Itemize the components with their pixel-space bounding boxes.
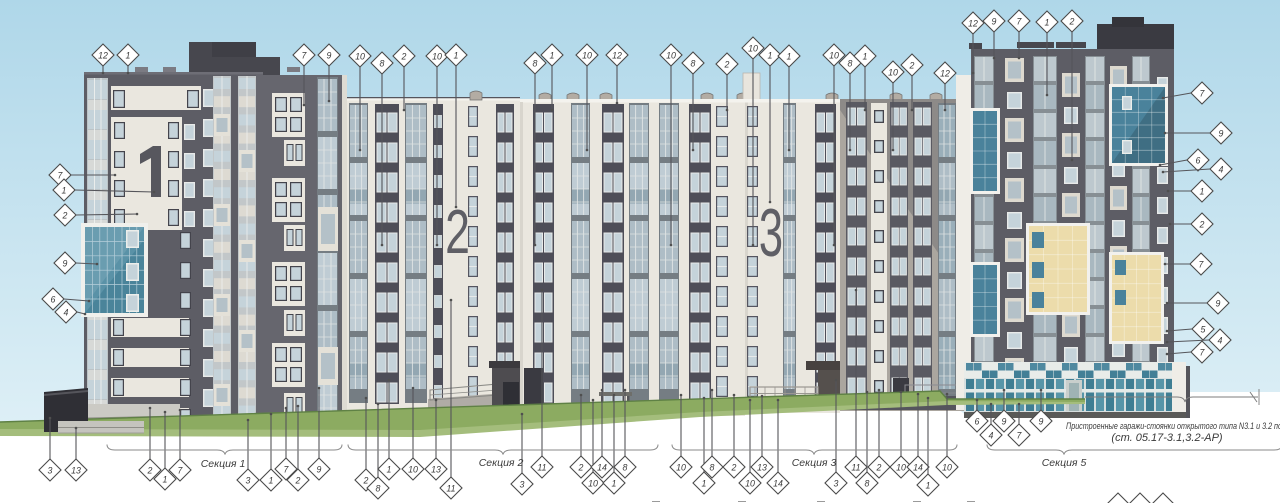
svg-text:Секция 1: Секция 1	[201, 458, 246, 470]
svg-text:10: 10	[432, 51, 442, 61]
svg-text:1: 1	[768, 50, 773, 60]
svg-text:2: 2	[295, 475, 301, 485]
svg-text:8: 8	[623, 462, 628, 472]
svg-text:2: 2	[1199, 219, 1205, 229]
svg-text:1: 1	[269, 475, 274, 485]
svg-text:1: 1	[387, 464, 392, 474]
svg-text:2: 2	[401, 51, 407, 61]
svg-text:10: 10	[676, 462, 686, 472]
svg-text:3: 3	[834, 478, 839, 488]
svg-text:3: 3	[520, 479, 525, 489]
svg-text:8: 8	[691, 58, 696, 68]
svg-text:3: 3	[48, 465, 53, 475]
svg-text:1: 1	[1200, 186, 1205, 196]
svg-text:1: 1	[163, 474, 168, 484]
svg-text:14: 14	[913, 462, 923, 472]
svg-text:10: 10	[408, 464, 418, 474]
svg-text:4: 4	[1218, 335, 1223, 345]
svg-text:1: 1	[126, 50, 131, 60]
svg-text:14: 14	[773, 478, 783, 488]
svg-text:2: 2	[62, 210, 68, 220]
svg-text:12: 12	[98, 50, 108, 60]
svg-text:2: 2	[909, 60, 915, 70]
svg-text:8: 8	[865, 478, 870, 488]
svg-text:11: 11	[851, 462, 860, 472]
svg-text:4: 4	[989, 430, 994, 440]
svg-text:13: 13	[71, 465, 81, 475]
svg-text:10: 10	[829, 50, 839, 60]
svg-text:12: 12	[612, 50, 622, 60]
svg-text:8: 8	[380, 58, 385, 68]
svg-text:2: 2	[445, 198, 470, 267]
svg-text:2: 2	[363, 475, 369, 485]
svg-text:1: 1	[787, 51, 792, 61]
svg-text:10: 10	[582, 50, 592, 60]
svg-text:10: 10	[666, 50, 676, 60]
svg-text:10: 10	[745, 478, 755, 488]
svg-text:11: 11	[446, 483, 455, 493]
svg-text:12: 12	[968, 18, 978, 28]
svg-text:6: 6	[51, 294, 56, 304]
svg-text:5: 5	[1201, 324, 1206, 334]
svg-text:12: 12	[940, 68, 950, 78]
svg-text:8: 8	[533, 58, 538, 68]
svg-text:9: 9	[63, 258, 68, 268]
svg-text:10: 10	[888, 67, 898, 77]
svg-text:4: 4	[1219, 164, 1224, 174]
svg-text:9: 9	[1219, 128, 1224, 138]
svg-text:6: 6	[1196, 155, 1201, 165]
svg-text:10: 10	[355, 51, 365, 61]
svg-text:1: 1	[1045, 17, 1050, 27]
svg-text:2: 2	[724, 59, 730, 69]
svg-text:Секция 5: Секция 5	[1042, 457, 1087, 469]
svg-text:9: 9	[1039, 416, 1044, 426]
svg-text:13: 13	[431, 464, 441, 474]
svg-text:8: 8	[376, 483, 381, 493]
svg-text:11: 11	[537, 462, 546, 472]
svg-text:8: 8	[848, 58, 853, 68]
svg-text:14: 14	[597, 462, 607, 472]
svg-text:1: 1	[454, 50, 459, 60]
svg-text:10: 10	[942, 462, 952, 472]
svg-text:10: 10	[588, 478, 598, 488]
svg-text:1: 1	[926, 480, 931, 490]
svg-text:9: 9	[992, 16, 997, 26]
svg-text:1: 1	[702, 478, 707, 488]
svg-text:13: 13	[757, 462, 767, 472]
svg-text:(ст. 05.17-3.1,3.2-АР): (ст. 05.17-3.1,3.2-АР)	[1111, 432, 1222, 444]
svg-text:1: 1	[550, 50, 555, 60]
svg-text:10: 10	[748, 43, 758, 53]
svg-text:Секция 2: Секция 2	[479, 457, 524, 469]
svg-text:1: 1	[863, 51, 868, 61]
svg-text:1: 1	[62, 185, 67, 195]
svg-text:9: 9	[327, 50, 332, 60]
svg-text:4: 4	[64, 307, 69, 317]
svg-text:2: 2	[1069, 16, 1075, 26]
svg-text:2: 2	[876, 462, 882, 472]
svg-text:9: 9	[317, 464, 322, 474]
svg-text:8: 8	[710, 462, 715, 472]
svg-text:2: 2	[731, 462, 737, 472]
svg-text:3: 3	[246, 475, 251, 485]
svg-text:2: 2	[147, 465, 153, 475]
svg-text:Пристроенные гаражи-стоянки от: Пристроенные гаражи-стоянки открытого ти…	[1066, 421, 1280, 431]
svg-text:Секция 3: Секция 3	[792, 457, 837, 469]
svg-text:3: 3	[759, 195, 783, 271]
svg-text:6: 6	[975, 416, 980, 426]
svg-text:1: 1	[612, 478, 617, 488]
svg-text:2: 2	[578, 462, 584, 472]
svg-text:10: 10	[896, 462, 906, 472]
svg-text:9: 9	[1002, 416, 1007, 426]
svg-text:9: 9	[1216, 298, 1221, 308]
